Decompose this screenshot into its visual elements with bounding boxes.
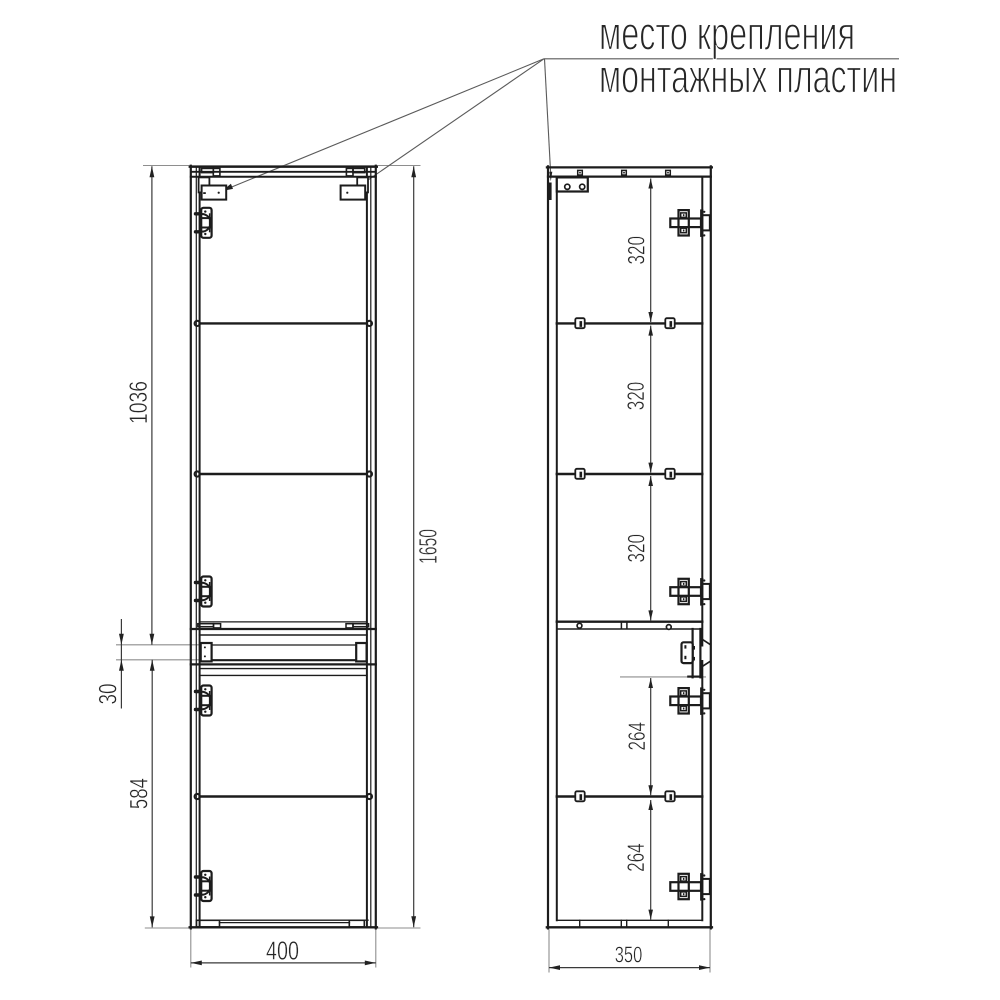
svg-text:264: 264: [623, 843, 650, 872]
svg-text:монтажных пластин: монтажных пластин: [599, 50, 897, 103]
svg-text:264: 264: [624, 722, 651, 751]
svg-text:320: 320: [623, 382, 650, 411]
svg-text:400: 400: [266, 936, 299, 966]
svg-text:350: 350: [615, 942, 643, 968]
svg-text:584: 584: [125, 778, 153, 809]
svg-text:1036: 1036: [125, 381, 153, 424]
svg-text:320: 320: [624, 236, 651, 264]
svg-text:1650: 1650: [415, 529, 443, 564]
svg-text:320: 320: [624, 534, 651, 563]
svg-text:30: 30: [95, 684, 123, 705]
